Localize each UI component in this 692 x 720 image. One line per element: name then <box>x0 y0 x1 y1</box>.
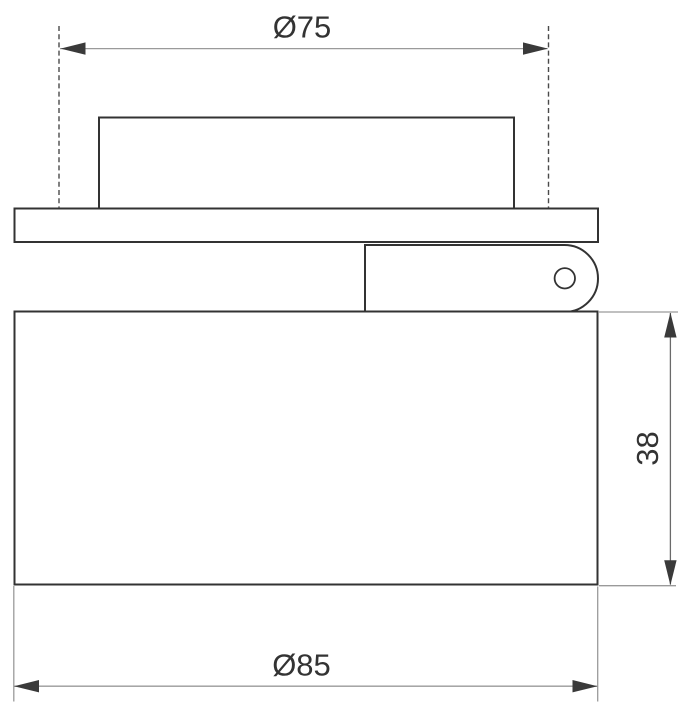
svg-text:38: 38 <box>630 431 665 465</box>
svg-text:Ø75: Ø75 <box>273 9 332 44</box>
svg-text:Ø85: Ø85 <box>272 647 331 682</box>
